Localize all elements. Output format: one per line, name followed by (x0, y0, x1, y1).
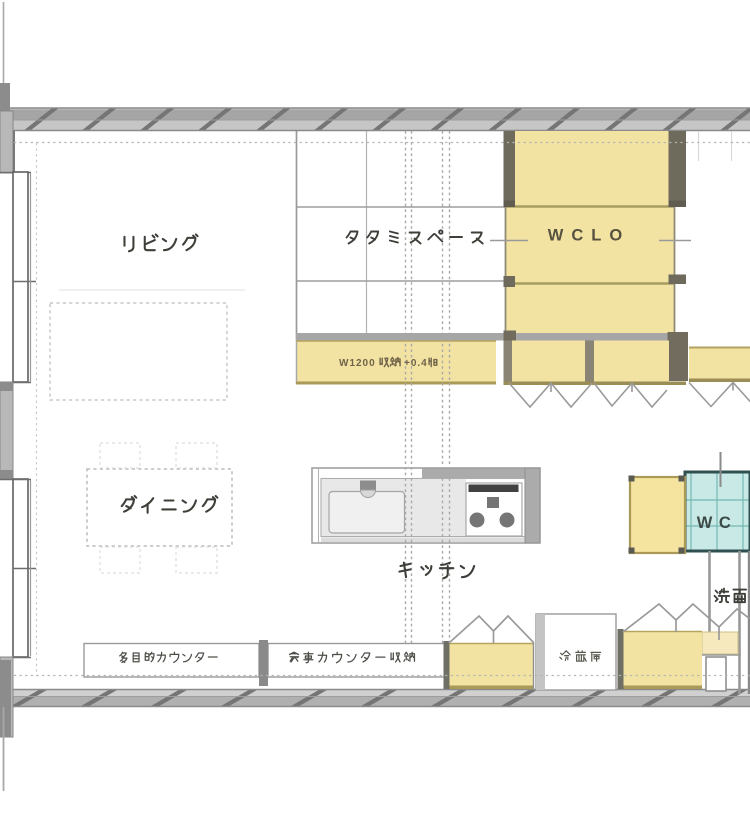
svg-text:W1200: W1200 (339, 358, 376, 369)
svg-text:+0.4: +0.4 (404, 358, 428, 369)
svg-text:WC: WC (697, 514, 738, 532)
svg-text:WCLO: WCLO (548, 227, 630, 245)
